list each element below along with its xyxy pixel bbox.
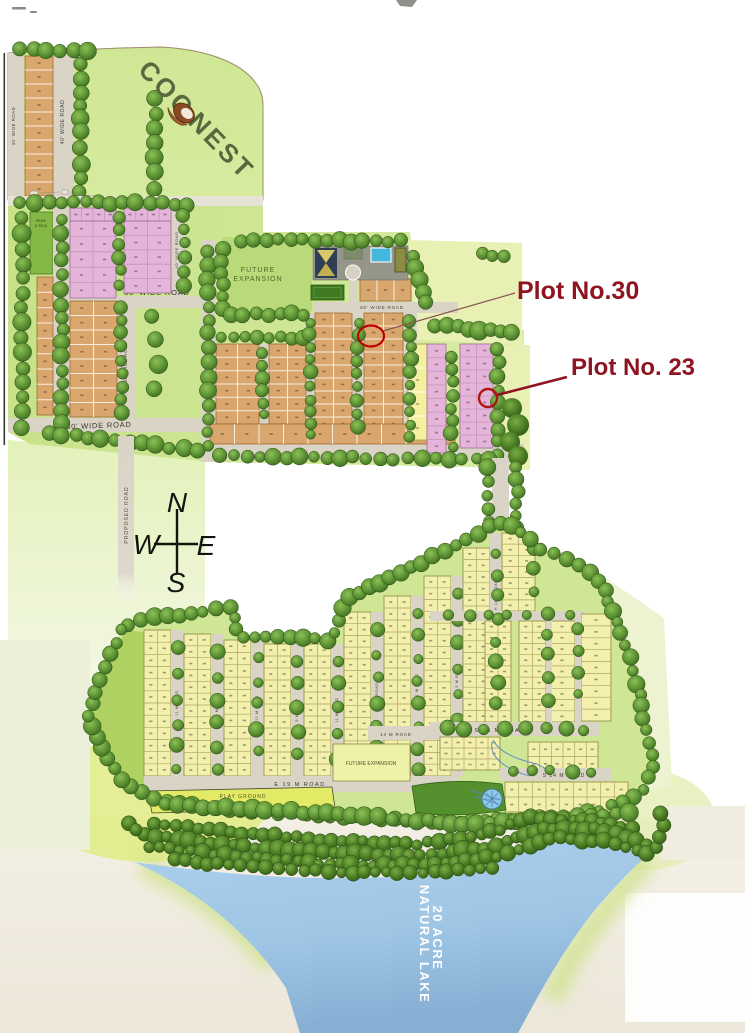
svg-text:PROPOSED ROAD: PROPOSED ROAD: [124, 486, 130, 543]
svg-text:30′ WIDE ROAD: 30′ WIDE ROAD: [11, 107, 16, 146]
svg-text:EXPANSION: EXPANSION: [233, 276, 282, 283]
svg-text:N: N: [167, 487, 188, 518]
svg-text:FUTURE: FUTURE: [241, 267, 275, 274]
svg-text:S: S: [167, 567, 186, 598]
svg-text:14 M ROAD: 14 M ROAD: [380, 732, 411, 737]
svg-text:E: E: [197, 530, 216, 561]
svg-text:& RCA: & RCA: [35, 223, 48, 228]
svg-text:FUTURE EXPANSION: FUTURE EXPANSION: [346, 761, 397, 767]
svg-text:Plot No. 23: Plot No. 23: [571, 354, 695, 381]
svg-text:NATURAL LAKE: NATURAL LAKE: [417, 885, 432, 1004]
svg-text:40′ WIDE ROAD: 40′ WIDE ROAD: [60, 100, 66, 145]
svg-text:Plot No.30: Plot No.30: [517, 277, 639, 305]
svg-text:W: W: [133, 529, 162, 560]
svg-text:40′ WIDE ROAD: 40′ WIDE ROAD: [174, 231, 179, 268]
svg-text:60′ WIDE ROAD: 60′ WIDE ROAD: [360, 305, 404, 310]
